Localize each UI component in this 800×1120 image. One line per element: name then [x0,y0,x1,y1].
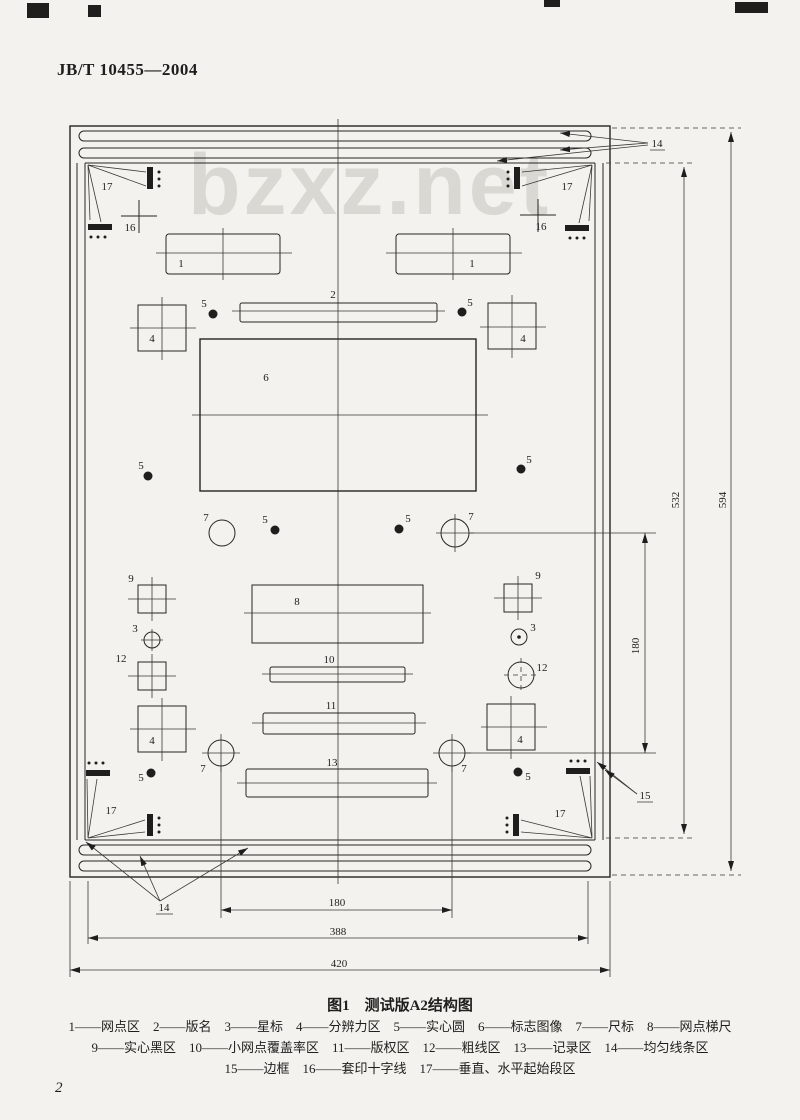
figure-caption: 图1 测试版A2结构图 [0,994,800,1015]
callout-label-5: 5 [262,514,268,526]
callout-label-17: 17 [102,181,114,193]
callout-label-16: 16 [125,222,137,234]
callout-label-17: 17 [562,181,574,193]
dimension-label-388: 388 [330,926,347,938]
callout-label-4: 4 [149,735,155,747]
callout-label-12: 12 [537,662,548,674]
corner-mark-top-right [507,165,593,240]
plate-outline [70,126,610,877]
callout-label-2: 2 [330,289,336,301]
dot-area-1 [156,228,522,280]
callout-label-8: 8 [294,596,300,608]
dimension-label-532: 532 [670,492,682,509]
callout-label-7: 7 [200,763,206,775]
dimension-label-180-right: 180 [630,637,642,654]
callout-label-17: 17 [555,808,567,820]
registration-cross-16 [121,199,556,233]
dot-step-scale-8 [244,585,431,643]
legend-row-1: 1——网点区 2——版名 3——星标 4——分辨力区 5——实心圆 6——标志图… [0,1016,800,1037]
callout-label-5: 5 [138,772,144,784]
callout-label-17: 17 [106,805,118,817]
callout-label-6: 6 [263,372,269,384]
callout-label-11: 11 [326,700,337,712]
resolution-area-4 [130,295,547,761]
small-dot-coverage-bar-10 [262,667,413,682]
callout-label-15: 15 [640,790,652,802]
callout-label-3: 3 [530,622,536,634]
dimension-lines [70,128,741,977]
dimension-label-180-bottom: 180 [329,897,346,909]
callout-label-12: 12 [116,653,127,665]
callout-label-5: 5 [201,298,207,310]
callout-label-5: 5 [526,454,532,466]
legend-row-3: 15——边框 16——套印十字线 17——垂直、水平起始段区 [0,1058,800,1079]
uniform-line-area-14-top [79,131,591,158]
uniform-line-area-14-bottom [79,845,591,871]
callout-label-13: 13 [327,757,339,769]
figure-legend: 1——网点区 2——版名 3——星标 4——分辨力区 5——实心圆 6——标志图… [0,1016,800,1079]
solid-black-area-9 [128,576,542,621]
callout-label-7: 7 [203,512,209,524]
callout-label-5: 5 [467,297,473,309]
callout-label-14: 14 [159,902,171,914]
callout-label-4: 4 [520,333,526,345]
callout-label-9: 9 [128,573,134,585]
copyright-bar-11 [252,713,426,734]
legend-row-2: 9——实心黑区 10——小网点覆盖率区 11——版权区 12——粗线区 13——… [0,1037,800,1058]
callout-label-7: 7 [468,511,474,523]
dimension-label-594: 594 [717,491,729,508]
callout-label-5: 5 [138,460,144,472]
dimension-label-420: 420 [331,958,348,970]
callout-label-1: 1 [178,258,184,270]
callout-label-4: 4 [517,734,523,746]
scan-artifacts [27,0,768,18]
callout-label-16: 16 [536,221,548,233]
callout-label-14: 14 [652,138,664,150]
record-bar-13 [237,769,437,797]
scanned-document-page: JB/T 10455—2004 bzxz.net [0,0,800,1120]
star-target-3 [141,629,527,651]
standard-number-header: JB/T 10455—2004 [57,60,198,80]
callout-label-1: 1 [469,258,475,270]
border-frame-15 [77,163,603,840]
callout-label-5: 5 [525,771,531,783]
plate-name-bar-2 [232,303,445,322]
test-plate-a2-diagram: 1 1 2 3 3 4 4 4 4 5 5 5 5 5 5 5 5 6 7 7 … [0,0,800,990]
callout-label-5: 5 [405,513,411,525]
page-number: 2 [55,1080,63,1097]
callout-label-10: 10 [324,654,336,666]
callout-label-4: 4 [149,333,155,345]
callout-label-9: 9 [535,570,541,582]
callout-label-7: 7 [461,763,467,775]
callout-label-3: 3 [132,623,138,635]
